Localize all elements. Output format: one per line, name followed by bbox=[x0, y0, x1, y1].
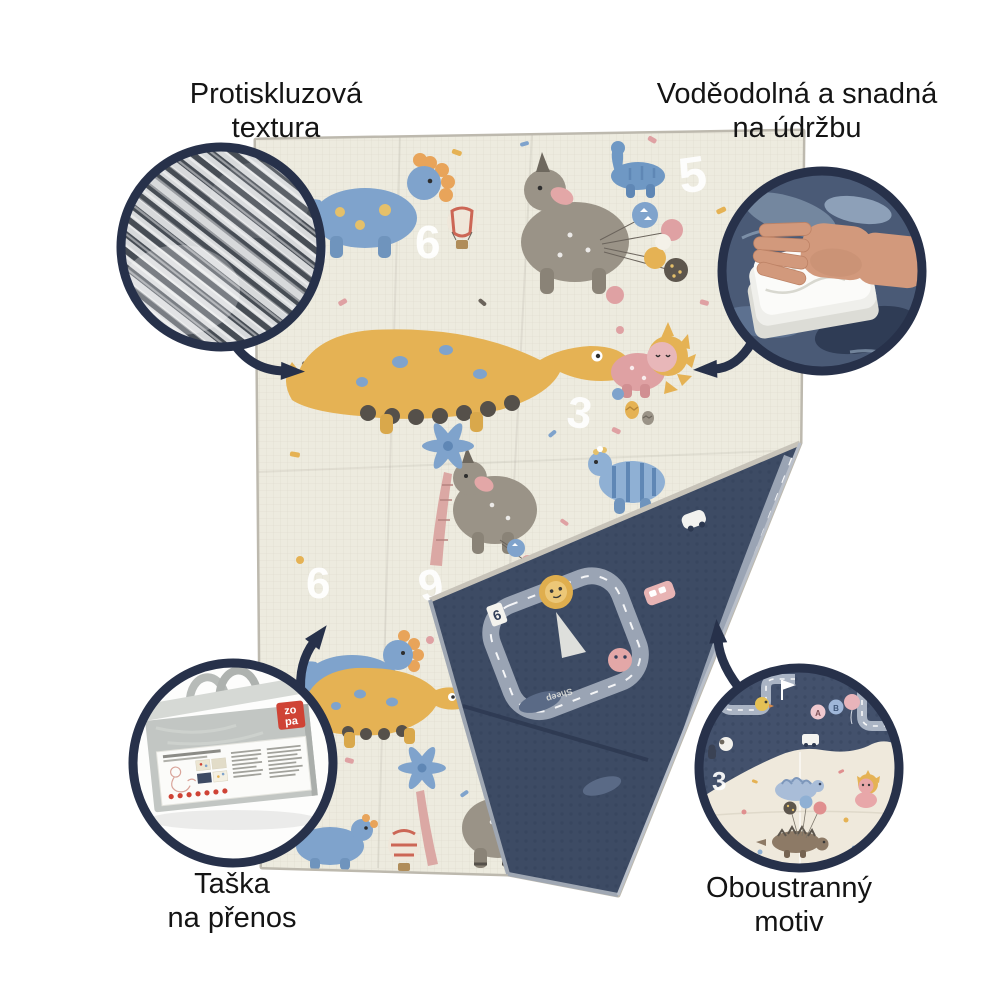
motif-number: 3 bbox=[712, 766, 726, 796]
balloon-letter-a: A bbox=[815, 709, 821, 718]
zopa-logo: zo pa bbox=[276, 700, 306, 730]
mat-number: 6 bbox=[415, 216, 441, 268]
label-waterproof-line1: Voděodolná a snadná bbox=[617, 78, 977, 112]
mat-number: 6 bbox=[306, 559, 330, 608]
label-carry-bag-line2: na přenos bbox=[72, 902, 392, 936]
label-double-sided-line1: Oboustranný bbox=[609, 872, 969, 906]
infographic-canvas: 5 6 9 3 6 9 7 bbox=[0, 0, 1000, 1000]
product-infographic: 5 6 9 3 6 9 7 bbox=[0, 0, 1000, 1000]
label-waterproof-line2: na údržbu bbox=[617, 112, 977, 146]
label-anti-slip-line2: textura bbox=[96, 112, 456, 146]
label-double-sided-line2: motiv bbox=[609, 906, 969, 940]
callout-circle-carry-bag: zo pa bbox=[132, 662, 334, 864]
label-carry-bag-line1: Taška bbox=[72, 868, 392, 902]
callout-circle-anti-slip bbox=[120, 146, 322, 348]
label-waterproof: Voděodolná a snadná na údržbu bbox=[617, 78, 977, 146]
callout-circle-waterproof bbox=[720, 171, 929, 371]
label-double-sided: Oboustranný motiv bbox=[609, 872, 969, 940]
label-carry-bag: Taška na přenos bbox=[72, 868, 392, 936]
balloon-letter-b: B bbox=[833, 704, 839, 713]
zopa-logo-line2: pa bbox=[284, 715, 299, 728]
label-anti-slip-line1: Protiskluzová bbox=[96, 78, 456, 112]
label-anti-slip: Protiskluzová textura bbox=[96, 78, 456, 146]
callout-circle-double-sided: A B 3 bbox=[698, 667, 900, 870]
